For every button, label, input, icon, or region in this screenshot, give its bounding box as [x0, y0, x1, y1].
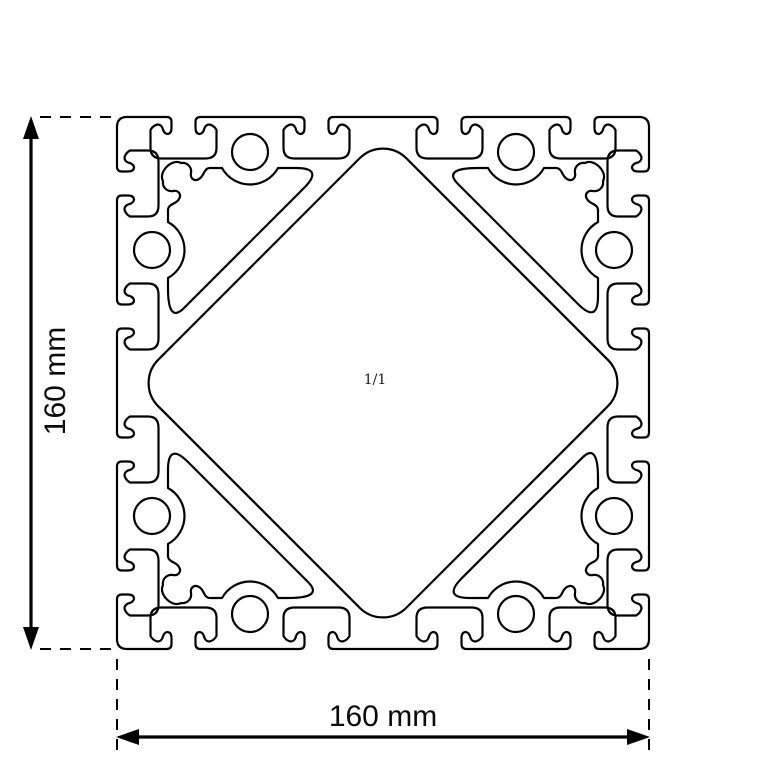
corner-cavity-bottom-left	[134, 454, 313, 632]
profile-side-left	[117, 127, 159, 649]
arrowhead-right-icon	[627, 729, 650, 745]
scale-label: 1/1	[364, 372, 387, 388]
profile-side-bottom	[127, 608, 649, 650]
corner-cavity-top-right	[453, 134, 632, 312]
profile-side-right	[608, 117, 650, 639]
drawing-canvas: { "drawing": { "kind": "aluminium-extrus…	[0, 0, 768, 768]
corner-cavity-bottom-right	[454, 453, 632, 632]
arrowhead-up-icon	[23, 116, 39, 139]
profile-section-drawing: 160 mm 160 mm 1/1	[0, 0, 768, 768]
arrowhead-down-icon	[23, 627, 39, 650]
height-dimension-label: 160 mm	[39, 327, 72, 435]
width-dimension-label: 160 mm	[329, 700, 437, 733]
corner-cavity-top-left	[134, 134, 312, 313]
width-dimension: 160 mm	[116, 659, 650, 750]
profile-side-top	[117, 117, 639, 159]
height-dimension: 160 mm	[23, 116, 112, 650]
arrowhead-left-icon	[116, 729, 139, 745]
